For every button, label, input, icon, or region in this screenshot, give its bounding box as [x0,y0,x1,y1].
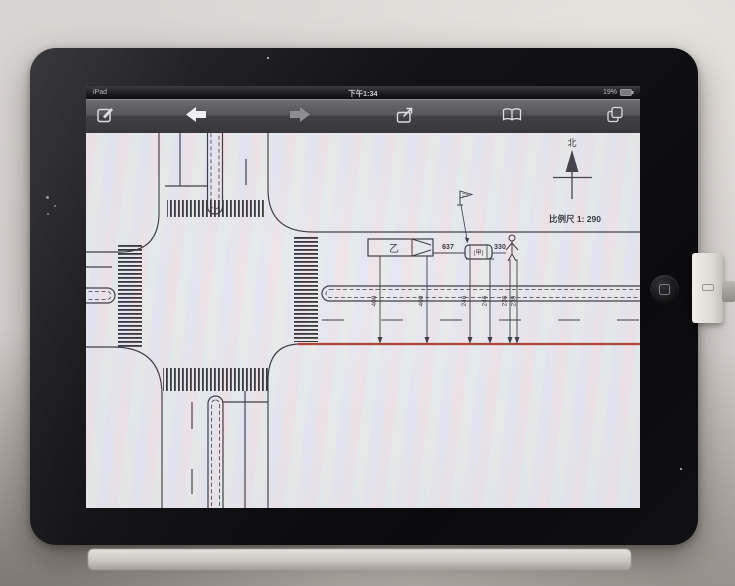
truck-vehicle: 乙 [368,239,433,256]
share-icon [396,106,415,124]
bookmarks-button[interactable] [500,105,524,127]
dock-connector [692,253,723,323]
back-button[interactable] [183,104,209,128]
accident-diagram: 乙 (甲) [86,133,640,508]
road-outlines [86,133,640,508]
offset-label: 400 [371,295,378,306]
crosswalk-west [118,244,142,347]
truck-label: 乙 [389,243,399,255]
ipad-screen: iPad 下午1:34 19% [86,86,640,508]
pedestrian-figure [506,235,518,261]
pages-button[interactable] [605,104,626,128]
pages-icon [607,106,624,123]
impact-marker-flag [457,191,472,243]
dust-speck [46,196,49,199]
dock-connector-logo [702,284,714,291]
dim-truck-to-car: 637 [442,244,454,251]
status-bar: iPad 下午1:34 19% [86,86,640,99]
offset-label: 400 [418,295,425,306]
car-vehicle: (甲) [465,245,492,259]
clock: 下午1:34 [348,89,377,99]
app-toolbar [86,99,640,134]
car-label: (甲) [474,250,484,257]
share-button[interactable] [394,104,417,129]
battery-percent: 19% [603,89,617,96]
median-islands [86,133,640,508]
dock-connector-cable [722,281,735,302]
offset-label: 246 [482,295,489,306]
back-arrow-icon [185,106,207,123]
vertical-dimension-lines [376,256,517,338]
home-button-icon [659,284,670,295]
forward-arrow-icon [289,106,311,123]
battery-icon [620,89,634,96]
dust-speck [54,205,56,207]
forward-button[interactable] [287,104,313,128]
compose-button[interactable] [94,104,116,129]
dust-speck [47,213,49,215]
offset-label: 239 [511,295,518,306]
offset-label: 246 [461,295,468,306]
dust-speck [267,57,269,59]
compose-icon [96,106,114,124]
offset-label: 236 [502,295,509,306]
north-label: 北 [567,138,576,148]
dim-car-to-person: 330 [494,244,506,251]
crosswalk-south [163,368,270,391]
photo-of-ipad: iPad 下午1:34 19% [0,0,735,586]
carrier-label: iPad [93,89,107,96]
tablet-bottom-edge [88,549,631,570]
scale-label: 比例尺 1: 290 [549,214,601,224]
crosswalk-east [294,236,318,342]
north-arrow: 北 [553,138,592,199]
bookmarks-icon [502,107,522,122]
dust-speck [680,468,682,470]
accident-diagram-canvas: 乙 (甲) [86,133,640,508]
home-button[interactable] [650,275,679,304]
